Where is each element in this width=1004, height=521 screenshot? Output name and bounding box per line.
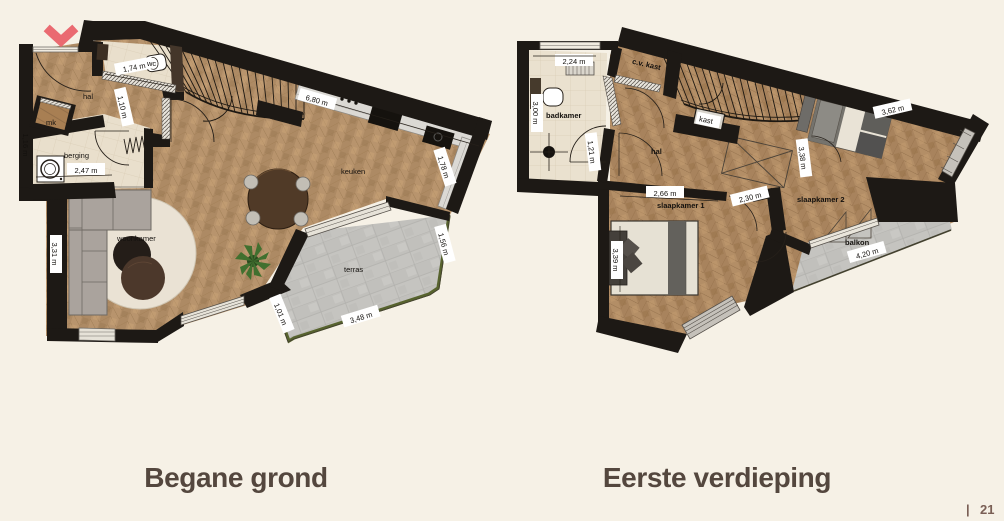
svg-text:21: 21 (980, 502, 994, 517)
svg-text:|: | (966, 502, 970, 517)
svg-text:slaapkamer 2: slaapkamer 2 (797, 195, 845, 204)
svg-text:hal: hal (651, 147, 662, 156)
svg-text:2,47 m: 2,47 m (75, 166, 98, 175)
svg-text:2,66 m: 2,66 m (654, 189, 677, 198)
svg-text:keuken: keuken (341, 167, 365, 176)
svg-text:1,16 m: 1,16 m (21, 134, 30, 157)
svg-text:terras: terras (344, 265, 363, 274)
svg-text:mk: mk (46, 118, 56, 127)
svg-text:badkamer: badkamer (546, 111, 582, 120)
svg-text:2,24 m: 2,24 m (563, 57, 586, 66)
svg-text:Begane grond: Begane grond (144, 462, 327, 493)
svg-text:3,00 m: 3,00 m (531, 102, 540, 125)
svg-text:hal: hal (83, 92, 93, 101)
svg-text:Eerste verdieping: Eerste verdieping (603, 462, 831, 493)
svg-text:berging: berging (64, 151, 89, 160)
svg-text:balkon: balkon (845, 238, 870, 247)
svg-text:wc: wc (146, 59, 156, 68)
svg-text:slaapkamer 1: slaapkamer 1 (657, 201, 705, 210)
svg-text:3,31 m: 3,31 m (50, 243, 59, 266)
svg-text:3,39 m: 3,39 m (611, 249, 620, 272)
svg-text:woonkamer: woonkamer (116, 234, 156, 243)
